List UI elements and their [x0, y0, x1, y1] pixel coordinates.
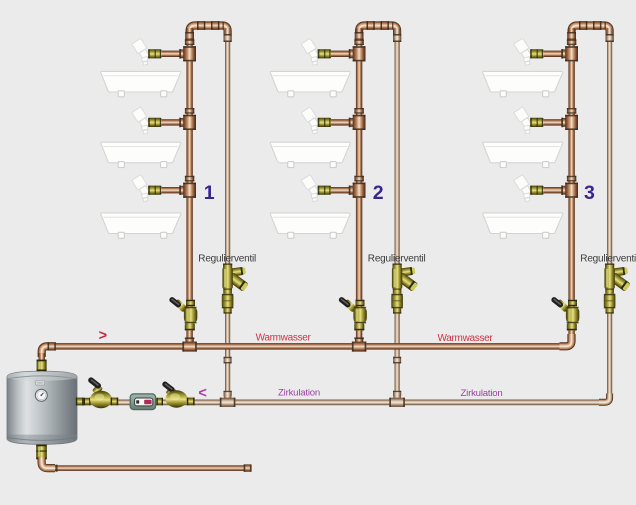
svg-text:3: 3 — [584, 182, 595, 204]
svg-text:Warmwasser: Warmwasser — [256, 333, 312, 344]
svg-text:>: > — [99, 328, 107, 344]
svg-text:2: 2 — [373, 182, 384, 204]
svg-text:<: < — [198, 386, 206, 402]
svg-text:Warmwasser: Warmwasser — [438, 333, 494, 344]
svg-text:1: 1 — [204, 182, 215, 204]
svg-text:Zirkulation: Zirkulation — [461, 388, 503, 399]
svg-text:Zirkulation: Zirkulation — [278, 388, 320, 399]
